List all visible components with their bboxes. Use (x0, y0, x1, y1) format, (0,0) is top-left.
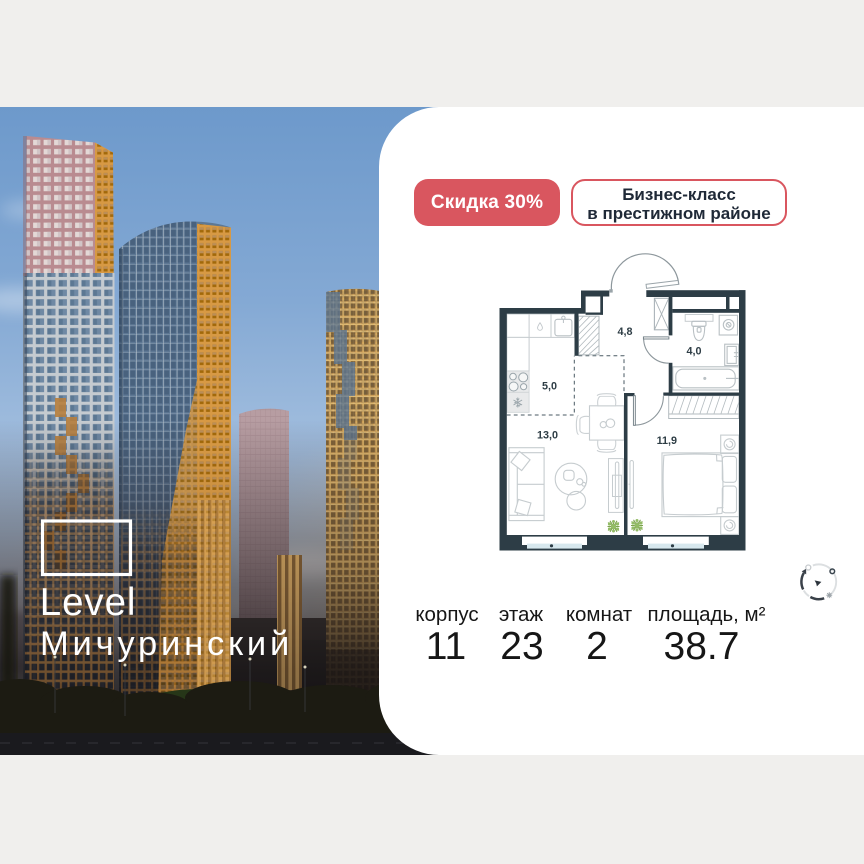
svg-text:4,0: 4,0 (686, 345, 701, 357)
svg-text:5,0: 5,0 (542, 380, 557, 392)
svg-text:13,0: 13,0 (537, 430, 558, 442)
svg-text:11,9: 11,9 (657, 435, 677, 447)
svg-text:4,8: 4,8 (617, 326, 632, 338)
